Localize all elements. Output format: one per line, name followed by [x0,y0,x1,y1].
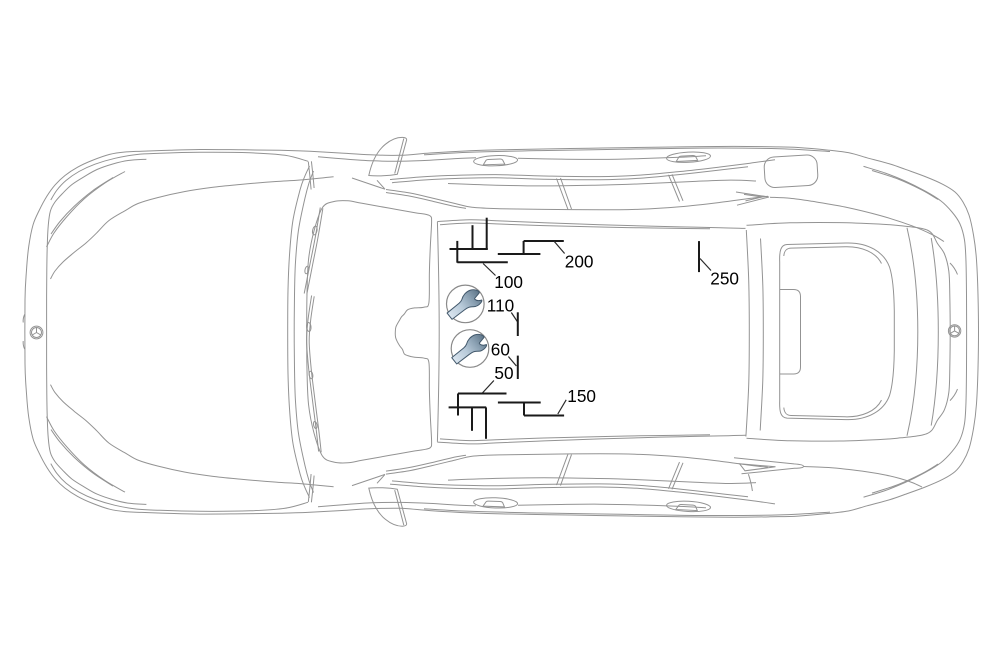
svg-text:150: 150 [567,386,596,406]
svg-text:110: 110 [487,296,514,316]
svg-text:60: 60 [491,340,510,360]
svg-text:100: 100 [494,272,523,292]
svg-text:250: 250 [710,268,739,288]
svg-text:50: 50 [494,363,513,383]
svg-text:200: 200 [565,251,594,271]
